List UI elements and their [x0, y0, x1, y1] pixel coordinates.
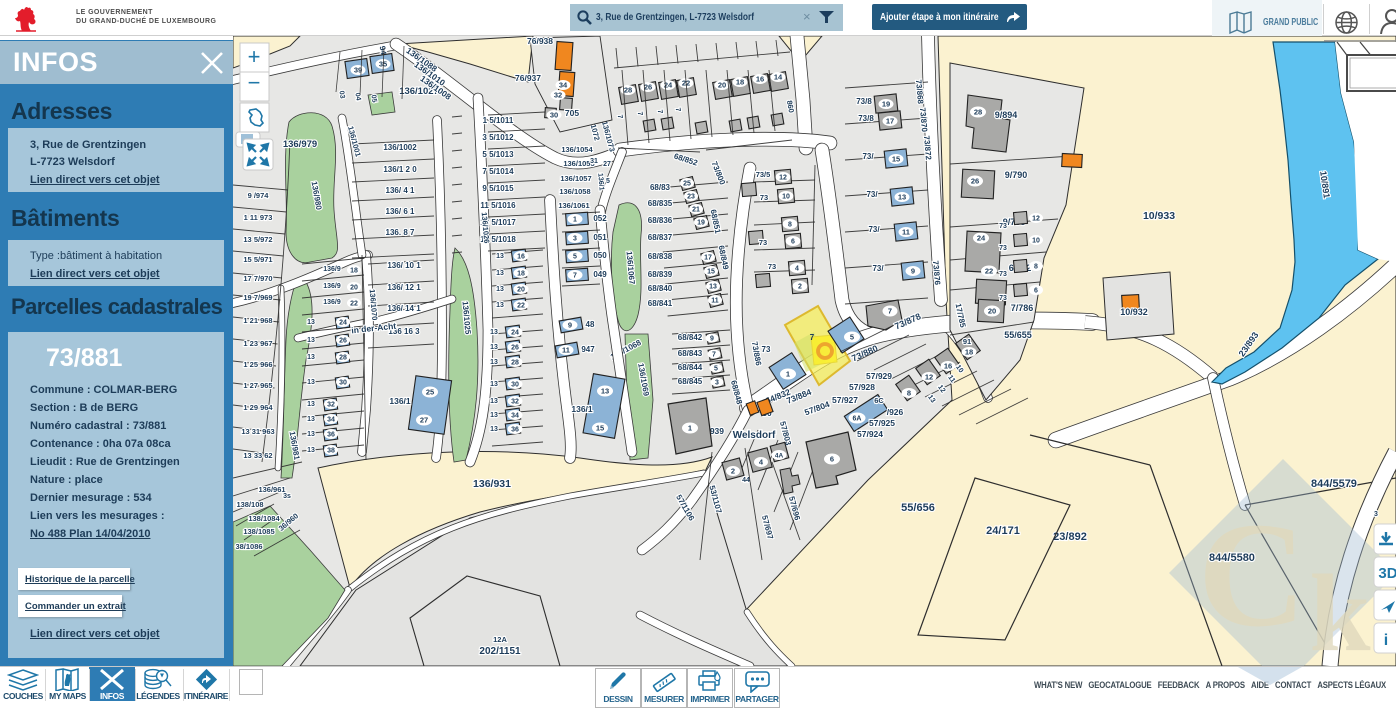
svg-text:13: 13: [490, 329, 498, 336]
svg-text:705: 705: [565, 108, 579, 118]
svg-text:19: 19: [882, 100, 890, 109]
svg-text:68/842: 68/842: [678, 333, 703, 342]
svg-text:13: 13: [490, 359, 498, 366]
svg-text:18: 18: [965, 348, 973, 357]
svg-text:55/656: 55/656: [901, 502, 935, 514]
svg-text:9/790: 9/790: [1005, 170, 1028, 180]
svg-text:13: 13: [490, 412, 498, 419]
svg-text:36: 36: [327, 432, 335, 439]
svg-text:13 31 963: 13 31 963: [241, 427, 274, 436]
svg-text:6: 6: [791, 239, 795, 246]
svg-text:73: 73: [999, 271, 1007, 278]
svg-text:1 11 973: 1 11 973: [244, 213, 273, 222]
svg-text:18: 18: [736, 78, 744, 87]
svg-text:27: 27: [603, 161, 611, 168]
svg-text:3: 3: [1374, 511, 1378, 518]
svg-text:20: 20: [988, 307, 996, 316]
svg-text:k: k: [1309, 552, 1371, 666]
svg-text:18: 18: [350, 268, 358, 275]
svg-text:15: 15: [707, 269, 715, 276]
svg-text:5 5/1013: 5 5/1013: [482, 150, 514, 159]
svg-text:17: 17: [704, 255, 712, 262]
svg-text:57/928: 57/928: [849, 382, 875, 392]
svg-text:1 23 967: 1 23 967: [243, 339, 272, 348]
svg-text:844/5580: 844/5580: [1209, 552, 1255, 564]
svg-text:25: 25: [683, 181, 691, 188]
svg-text:24/171: 24/171: [986, 525, 1020, 537]
svg-text:13 33 62: 13 33 62: [243, 451, 272, 460]
svg-text:13: 13: [496, 270, 504, 277]
svg-text:73/5: 73/5: [756, 170, 771, 179]
svg-text:30: 30: [550, 111, 558, 120]
svg-text:68/835: 68/835: [648, 199, 673, 208]
svg-text:57/925: 57/925: [869, 418, 895, 428]
svg-text:6: 6: [830, 455, 834, 464]
svg-text:13: 13: [490, 426, 498, 433]
svg-text:30: 30: [511, 382, 519, 389]
svg-text:57/927: 57/927: [832, 395, 858, 405]
svg-text:73/: 73/: [872, 264, 884, 273]
svg-text:947: 947: [581, 345, 595, 354]
svg-text:136/ 12 1: 136/ 12 1: [387, 283, 421, 292]
svg-text:15 5/971: 15 5/971: [243, 255, 272, 264]
svg-text:20: 20: [718, 81, 726, 90]
svg-text:11: 11: [711, 298, 719, 305]
svg-text:05: 05: [369, 94, 377, 103]
svg-text:30: 30: [339, 380, 347, 387]
svg-text:12: 12: [1032, 216, 1040, 223]
svg-text:136/1057: 136/1057: [560, 174, 591, 183]
svg-text:10: 10: [782, 194, 790, 201]
svg-text:202/1151: 202/1151: [479, 646, 521, 657]
svg-text:7/786: 7/786: [1011, 303, 1034, 313]
svg-text:68/841: 68/841: [648, 299, 673, 308]
svg-text:13: 13: [601, 387, 609, 396]
svg-text:73: 73: [999, 295, 1007, 302]
svg-text:28: 28: [974, 108, 982, 117]
svg-text:136. 8 7: 136. 8 7: [386, 228, 415, 237]
svg-text:8: 8: [788, 222, 792, 229]
svg-text:1: 1: [786, 370, 790, 379]
svg-text:7: 7: [810, 333, 815, 342]
svg-text:19: 19: [697, 220, 705, 227]
svg-text:13: 13: [307, 416, 315, 423]
svg-text:32: 32: [511, 399, 519, 406]
svg-text:73: 73: [759, 238, 767, 247]
svg-text:7: 7: [712, 352, 716, 359]
svg-text:22: 22: [350, 301, 358, 308]
svg-text:73: 73: [762, 345, 771, 354]
svg-text:1 25 966: 1 25 966: [243, 360, 272, 369]
svg-text:13: 13: [307, 379, 315, 386]
svg-text:13: 13: [496, 286, 504, 293]
svg-text:136/ 6 1: 136/ 6 1: [386, 207, 415, 216]
svg-text:14: 14: [774, 73, 783, 82]
svg-text:27: 27: [420, 416, 428, 425]
svg-text:136/1002: 136/1002: [383, 143, 417, 152]
svg-text:36: 36: [511, 427, 519, 434]
svg-text:049: 049: [593, 270, 607, 279]
svg-text:6A: 6A: [853, 416, 862, 423]
svg-text:10/932: 10/932: [1120, 307, 1148, 317]
svg-text:136/961: 136/961: [258, 485, 285, 494]
svg-text:11: 11: [902, 228, 910, 237]
svg-text:68/845: 68/845: [678, 377, 703, 386]
svg-text:2: 2: [798, 284, 802, 291]
svg-text:22: 22: [985, 267, 993, 276]
svg-text:13: 13: [307, 354, 315, 361]
svg-text:052: 052: [593, 214, 607, 223]
svg-text:73: 73: [999, 223, 1007, 230]
svg-text:/926: /926: [887, 407, 904, 417]
svg-text:48: 48: [586, 320, 595, 329]
svg-text:1: 1: [688, 424, 692, 433]
svg-text:136/1: 136/1: [389, 396, 411, 406]
svg-text:28: 28: [511, 360, 519, 367]
svg-text:28: 28: [624, 86, 632, 95]
svg-text:136/1 2 0: 136/1 2 0: [383, 165, 417, 174]
svg-text:+: +: [248, 44, 261, 69]
svg-text:3 5/1012: 3 5/1012: [482, 133, 514, 142]
svg-text:73/8: 73/8: [856, 97, 872, 106]
svg-text:3D: 3D: [1378, 565, 1396, 582]
svg-text:73/: 73/: [866, 190, 878, 199]
svg-text:13: 13: [490, 344, 498, 351]
svg-text:136/9: 136/9: [323, 299, 341, 306]
svg-text:5: 5: [606, 178, 610, 185]
svg-text:13: 13: [496, 302, 504, 309]
svg-text:26: 26: [339, 338, 347, 345]
svg-text:1 27 965: 1 27 965: [243, 381, 272, 390]
svg-text:73: 73: [999, 245, 1007, 252]
svg-text:136/1: 136/1: [571, 404, 593, 414]
svg-text:34: 34: [327, 417, 335, 424]
svg-text:9: 9: [568, 321, 572, 330]
svg-text:25: 25: [426, 388, 434, 397]
svg-text:138/108: 138/108: [236, 500, 263, 509]
svg-text:73/8: 73/8: [858, 114, 874, 123]
svg-text:23: 23: [687, 194, 695, 201]
svg-text:13: 13: [709, 284, 717, 291]
svg-text:22: 22: [517, 303, 525, 310]
svg-text:2: 2: [731, 467, 735, 476]
svg-text:13: 13: [898, 193, 906, 202]
svg-text:73: 73: [760, 193, 768, 202]
svg-text:20: 20: [517, 287, 525, 294]
svg-text:16: 16: [944, 362, 952, 371]
svg-text:21: 21: [692, 207, 700, 214]
svg-text:9 /974: 9 /974: [248, 191, 270, 200]
svg-text:76/937: 76/937: [515, 73, 541, 83]
svg-text:136/1054: 136/1054: [561, 145, 593, 154]
svg-text:68/837: 68/837: [648, 233, 673, 242]
svg-text:73: 73: [768, 262, 776, 271]
svg-text:136/1058: 136/1058: [559, 187, 590, 196]
svg-text:68/83: 68/83: [650, 183, 671, 192]
svg-text:76/938: 76/938: [527, 36, 553, 46]
svg-text:13: 13: [490, 381, 498, 388]
svg-text:32: 32: [327, 402, 335, 409]
svg-text:6: 6: [1034, 288, 1038, 295]
svg-text:13: 13: [307, 431, 315, 438]
svg-text:1 29 964: 1 29 964: [243, 403, 273, 412]
svg-text:24: 24: [977, 234, 986, 243]
svg-text:11: 11: [562, 346, 570, 355]
svg-text:32: 32: [554, 91, 562, 100]
svg-text:28: 28: [339, 355, 347, 362]
svg-text:i: i: [1384, 632, 1388, 649]
svg-text:34: 34: [559, 81, 568, 90]
svg-text:13: 13: [490, 398, 498, 405]
svg-text:38: 38: [327, 448, 335, 455]
svg-text:73/: 73/: [868, 225, 880, 234]
svg-text:38/1086: 38/1086: [235, 542, 262, 551]
svg-text:136/9: 136/9: [323, 266, 341, 273]
svg-text:C: C: [1198, 492, 1306, 658]
svg-text:23/892: 23/892: [1053, 531, 1087, 543]
svg-text:5: 5: [850, 333, 854, 342]
svg-text:24: 24: [511, 330, 519, 337]
svg-text:7: 7: [573, 273, 577, 280]
svg-text:68/840: 68/840: [648, 284, 673, 293]
svg-text:136/ 14 1: 136/ 14 1: [387, 304, 421, 313]
svg-text:16: 16: [517, 254, 525, 261]
svg-text:136/ 4 1: 136/ 4 1: [386, 186, 415, 195]
svg-text:9/894: 9/894: [995, 110, 1018, 120]
svg-text:3s: 3s: [283, 493, 291, 500]
svg-text:5: 5: [714, 366, 718, 373]
svg-text:5: 5: [573, 254, 577, 261]
svg-text:1: 1: [573, 217, 577, 224]
svg-text:8: 8: [907, 389, 911, 398]
svg-text:844/5579: 844/5579: [1311, 478, 1357, 490]
svg-text:68/836: 68/836: [648, 216, 673, 225]
svg-text:1 21 968: 1 21 968: [243, 316, 272, 325]
svg-text:57/929: 57/929: [866, 371, 892, 381]
svg-text:13: 13: [307, 401, 315, 408]
svg-text:3: 3: [573, 236, 577, 243]
svg-text:7: 7: [888, 307, 892, 316]
svg-text:03: 03: [337, 90, 345, 99]
svg-text:24: 24: [339, 320, 347, 327]
svg-text:68/839: 68/839: [648, 270, 673, 279]
svg-text:7 5/1014: 7 5/1014: [482, 167, 514, 176]
svg-text:55/655: 55/655: [1004, 330, 1032, 340]
svg-text:34: 34: [511, 413, 519, 420]
svg-text:57/924: 57/924: [857, 429, 883, 439]
svg-text:13: 13: [496, 253, 504, 260]
svg-text:6C: 6C: [874, 396, 884, 405]
svg-text:10: 10: [1032, 238, 1040, 245]
svg-text:4A: 4A: [775, 453, 784, 460]
svg-text:13: 13: [307, 447, 315, 454]
svg-text:68/843: 68/843: [678, 349, 703, 358]
svg-text:11 5/1016: 11 5/1016: [480, 201, 516, 210]
svg-text:26: 26: [971, 177, 979, 186]
svg-text:9 5/1015: 9 5/1015: [482, 184, 514, 193]
svg-text:136/1061: 136/1061: [558, 201, 589, 210]
svg-text:051: 051: [593, 233, 607, 242]
svg-text:12: 12: [925, 373, 933, 382]
svg-text:20: 20: [350, 285, 358, 292]
svg-text:19 7/969: 19 7/969: [243, 293, 272, 302]
svg-text:9: 9: [710, 336, 714, 343]
svg-text:17 7/970: 17 7/970: [243, 274, 272, 283]
svg-text:136/9: 136/9: [323, 283, 341, 290]
svg-text:26: 26: [511, 345, 519, 352]
svg-text:138/1085: 138/1085: [243, 527, 274, 536]
svg-text:3: 3: [715, 380, 719, 387]
svg-text:13: 13: [307, 319, 315, 326]
svg-text:8: 8: [1034, 264, 1038, 271]
svg-text:44: 44: [742, 477, 750, 484]
svg-text:136/931: 136/931: [473, 478, 511, 490]
svg-text:4: 4: [795, 266, 799, 273]
svg-text:13: 13: [307, 337, 315, 344]
svg-text:9: 9: [911, 267, 915, 276]
svg-text:15: 15: [892, 155, 900, 164]
svg-text:16: 16: [756, 75, 764, 84]
svg-text:1 5/1011: 1 5/1011: [483, 116, 514, 125]
svg-text:136/979: 136/979: [283, 139, 317, 150]
svg-text:17: 17: [886, 117, 894, 126]
svg-text:12: 12: [779, 175, 787, 182]
svg-text:12A: 12A: [493, 635, 507, 644]
svg-text:15: 15: [596, 424, 604, 433]
svg-text:18: 18: [517, 271, 525, 278]
svg-text:050: 050: [593, 251, 607, 260]
svg-text:136/ 10 1: 136/ 10 1: [387, 261, 421, 270]
svg-text:68/844: 68/844: [678, 363, 703, 372]
svg-text:10/933: 10/933: [1143, 210, 1175, 222]
svg-text:Welsdorf: Welsdorf: [733, 430, 776, 441]
svg-text:68/838: 68/838: [648, 252, 673, 261]
svg-text:73/: 73/: [862, 152, 874, 161]
svg-text:91: 91: [963, 337, 971, 346]
svg-text:31: 31: [590, 158, 598, 165]
svg-text:−: −: [248, 70, 261, 95]
svg-text:138/1084: 138/1084: [248, 514, 280, 523]
svg-text:13 5/972: 13 5/972: [243, 235, 272, 244]
